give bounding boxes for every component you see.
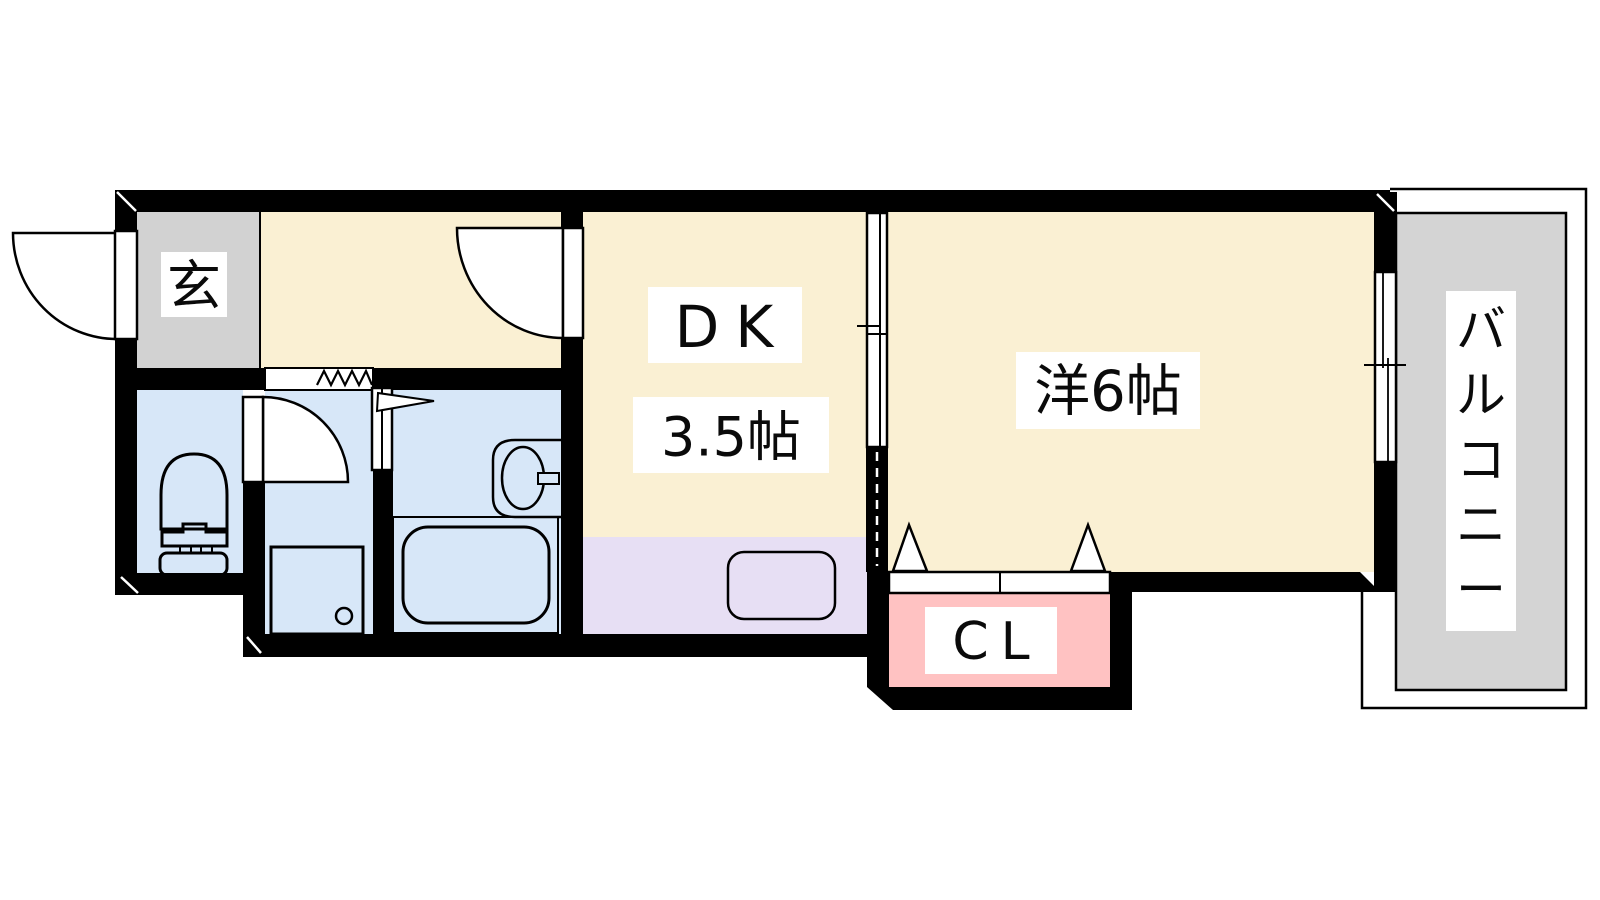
floorplan-drawing: 玄 DK 3.5帖 洋6帖 CL バルコニー (0, 0, 1600, 900)
label-dk-size: 3.5帖 (661, 406, 801, 469)
wall-entry-bottom (115, 368, 265, 390)
wall-western-bottom (1110, 572, 1380, 592)
wall-hall-dk-lower (561, 338, 583, 634)
room-dk-floor (583, 212, 867, 537)
wall-closet-bottom (867, 687, 1132, 710)
kitchen-counter-area (583, 537, 867, 634)
floorplan-page: 玄 DK 3.5帖 洋6帖 CL バルコニー (0, 0, 1600, 900)
wall-closet-left (867, 572, 889, 687)
wall-left-upper (115, 190, 137, 233)
room-bathroom-floor (393, 390, 561, 634)
wall-hall-dk-upper (561, 212, 583, 228)
entry-door-panel (115, 231, 137, 339)
wall-bottom-main (243, 634, 868, 657)
label-dk: DK (675, 293, 790, 361)
wall-right-lower (1374, 462, 1397, 592)
label-entry: 玄 (167, 255, 221, 318)
sliding-partition (867, 213, 887, 447)
balcony-window (1375, 272, 1396, 462)
dk-door-panel (563, 228, 583, 338)
washroom-door-panel (243, 397, 263, 482)
washbasin-faucet (538, 473, 559, 484)
label-balcony: バルコニー (1456, 301, 1506, 619)
wall-washroom-top (373, 368, 583, 390)
label-closet: CL (952, 612, 1041, 672)
wall-toilet-washroom (243, 482, 265, 657)
wall-top (115, 190, 1390, 212)
label-western-room: 洋6帖 (1034, 360, 1182, 425)
wall-washroom-bathroom (373, 470, 393, 634)
entry-door-swing (13, 233, 117, 339)
